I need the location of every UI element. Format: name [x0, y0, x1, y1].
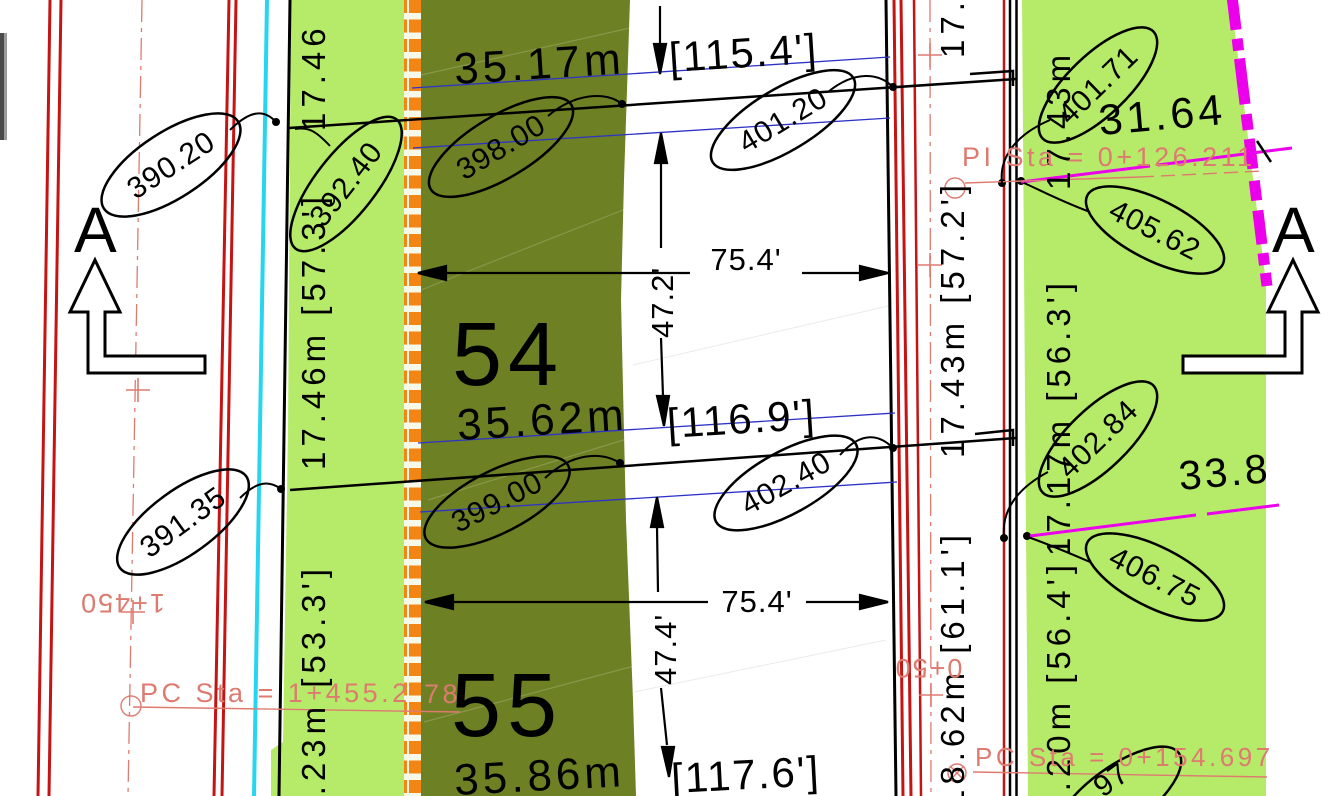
- station-tick-050: 0+50: [894, 653, 963, 683]
- dim-road-width-upper: 75.4': [710, 242, 781, 277]
- pc-point-symbol-left: [121, 696, 141, 716]
- station-pc-left-prefix: PC Sta = 1+455.2: [140, 678, 411, 708]
- frontage-right-middle: 17.17m [56.3']: [1040, 278, 1077, 556]
- dim-lot54-top-feet: [115.4']: [668, 25, 820, 81]
- dim-offset-upper: 47.2': [645, 267, 680, 338]
- station-pc-left-suffix: 78: [424, 679, 461, 709]
- plan-canvas: 390.20 392.40 398.00 401.20 401.71 405.6…: [0, 0, 1342, 796]
- dim-boundary-lower: 33.8: [1177, 445, 1272, 499]
- frontage-left-middle: 17.46m [57.3']: [295, 192, 332, 470]
- dim-lot55-bottom-feet: [117.6']: [670, 747, 822, 796]
- station-pc-right: PC Sta = 0+154.697: [975, 742, 1274, 772]
- dim-lot55-top-feet: [116.9']: [666, 391, 818, 447]
- cad-plan-drawing: 390.20 392.40 398.00 401.20 401.71 405.6…: [0, 0, 1342, 796]
- lot-number-54: 54: [452, 305, 564, 405]
- greenbelt-left-band: [271, 0, 405, 796]
- edge-clip-bar-light: [4, 33, 7, 140]
- dim-road-width-lower: 75.4': [721, 584, 792, 619]
- frontage-center-middle: 17.43m [57.2']: [934, 180, 971, 458]
- elevation-label-391-35: 391.35: [101, 450, 265, 593]
- elevation-value: 390.20: [121, 125, 221, 206]
- section-letter-right: A: [1272, 194, 1315, 266]
- dim-offset-lower: 47.4': [648, 614, 683, 685]
- left-road-edge-lines: [38, 0, 236, 796]
- station-tick-1450: 1+450: [79, 588, 165, 618]
- frontage-center-top-partial: 17.: [934, 0, 971, 58]
- lot-number-55: 55: [451, 656, 563, 756]
- section-letter-left: A: [74, 194, 117, 266]
- frontage-left-top-partial: 17.46: [295, 23, 332, 131]
- waterline-cyan: [254, 0, 267, 796]
- station-pi-right: PI Sta = 0+126.211: [962, 142, 1256, 172]
- elevation-value: 401.20: [733, 81, 834, 160]
